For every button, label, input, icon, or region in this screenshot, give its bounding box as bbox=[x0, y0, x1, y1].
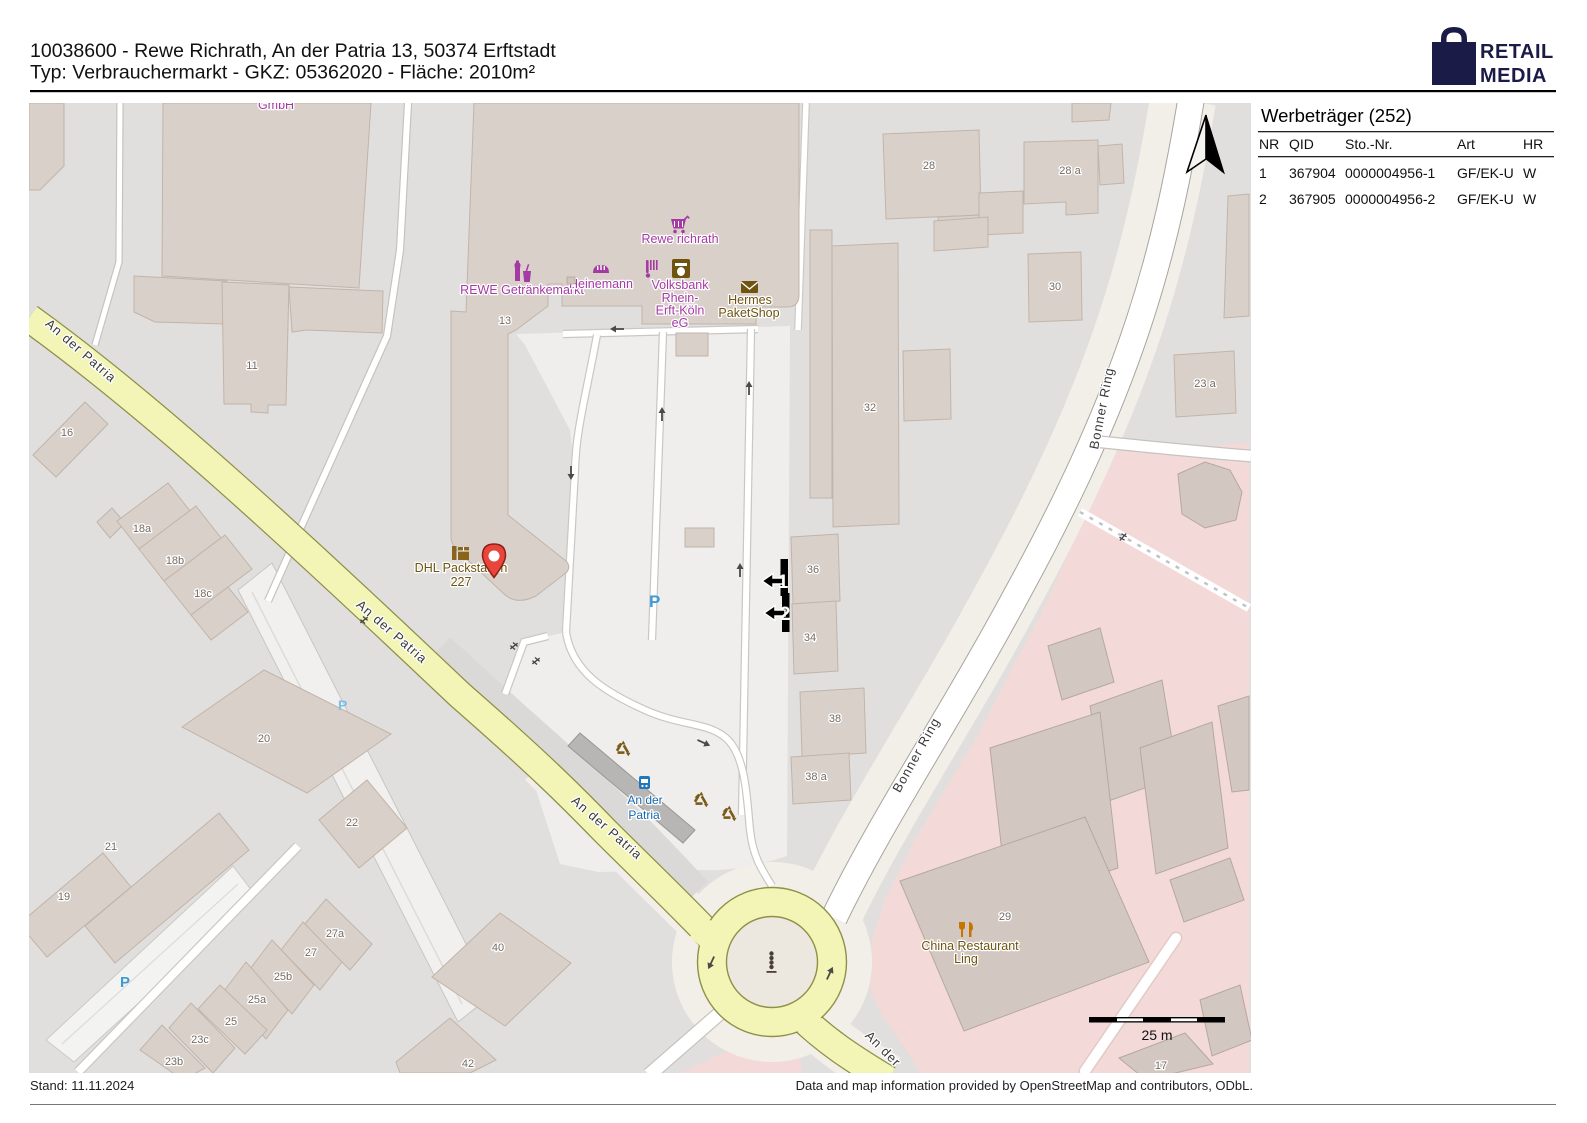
svg-text:Volksbank: Volksbank bbox=[652, 278, 710, 292]
svg-text:HR: HR bbox=[1523, 136, 1543, 152]
svg-text:18c: 18c bbox=[194, 588, 212, 600]
svg-text:27a: 27a bbox=[326, 928, 345, 940]
svg-text:367904: 367904 bbox=[1289, 165, 1336, 181]
svg-text:367905: 367905 bbox=[1289, 191, 1336, 207]
svg-text:19: 19 bbox=[58, 891, 70, 903]
svg-text:13: 13 bbox=[499, 315, 511, 327]
svg-text:29: 29 bbox=[999, 911, 1011, 923]
svg-text:Ling: Ling bbox=[954, 952, 978, 966]
svg-text:REWE Getränkemarkt: REWE Getränkemarkt bbox=[460, 283, 584, 297]
svg-text:16: 16 bbox=[61, 427, 73, 439]
svg-text:Data and map information provi: Data and map information provided by Ope… bbox=[796, 1078, 1253, 1093]
svg-text:QID: QID bbox=[1289, 136, 1314, 152]
svg-text:Heinemann: Heinemann bbox=[569, 277, 633, 291]
svg-text:38: 38 bbox=[829, 713, 841, 725]
svg-text:227: 227 bbox=[451, 575, 472, 589]
svg-text:36: 36 bbox=[807, 564, 819, 576]
svg-text:18a: 18a bbox=[133, 523, 152, 535]
svg-text:0000004956-1: 0000004956-1 bbox=[1345, 165, 1436, 181]
svg-text:10038600 - Rewe Richrath, An d: 10038600 - Rewe Richrath, An der Patria … bbox=[30, 40, 556, 62]
svg-text:Stand: 11.11.2024: Stand: 11.11.2024 bbox=[30, 1078, 134, 1093]
svg-text:38 a: 38 a bbox=[805, 771, 827, 783]
svg-text:PaketShop: PaketShop bbox=[718, 306, 779, 320]
svg-text:25: 25 bbox=[225, 1016, 237, 1028]
svg-text:GmbH: GmbH bbox=[258, 98, 294, 112]
svg-text:GF/EK-U: GF/EK-U bbox=[1457, 191, 1514, 207]
svg-text:Rewe richrath: Rewe richrath bbox=[641, 232, 718, 246]
svg-text:Patria: Patria bbox=[628, 808, 660, 822]
svg-text:Typ: Verbrauchermarkt - GKZ: 0: Typ: Verbrauchermarkt - GKZ: 05362020 - … bbox=[30, 62, 536, 84]
svg-text:China Restaurant: China Restaurant bbox=[921, 939, 1019, 953]
svg-text:2: 2 bbox=[780, 604, 791, 625]
svg-text:25b: 25b bbox=[274, 971, 292, 983]
svg-text:Sto.-Nr.: Sto.-Nr. bbox=[1345, 136, 1392, 152]
svg-text:P: P bbox=[649, 592, 660, 611]
svg-text:30: 30 bbox=[1049, 281, 1061, 293]
svg-text:1: 1 bbox=[778, 572, 789, 593]
svg-text:21: 21 bbox=[105, 841, 117, 853]
svg-text:0000004956-2: 0000004956-2 bbox=[1345, 191, 1436, 207]
svg-text:23c: 23c bbox=[191, 1034, 209, 1046]
svg-text:An der: An der bbox=[627, 793, 662, 807]
svg-text:Art: Art bbox=[1457, 136, 1475, 152]
svg-text:GF/EK-U: GF/EK-U bbox=[1457, 165, 1514, 181]
svg-text:NR: NR bbox=[1259, 136, 1279, 152]
svg-text:23 a: 23 a bbox=[1194, 378, 1216, 390]
svg-text:25a: 25a bbox=[248, 994, 267, 1006]
svg-text:P: P bbox=[338, 697, 347, 713]
svg-text:11: 11 bbox=[246, 360, 257, 372]
svg-text:20: 20 bbox=[258, 733, 270, 745]
svg-text:eG: eG bbox=[672, 316, 689, 330]
svg-text:W: W bbox=[1523, 165, 1537, 181]
svg-text:1: 1 bbox=[1259, 165, 1267, 181]
svg-text:Hermes: Hermes bbox=[728, 293, 772, 307]
svg-text:42: 42 bbox=[462, 1058, 474, 1070]
svg-text:34: 34 bbox=[804, 632, 816, 644]
svg-text:22: 22 bbox=[346, 817, 358, 829]
svg-text:17: 17 bbox=[1155, 1060, 1167, 1072]
svg-text:25 m: 25 m bbox=[1141, 1027, 1172, 1043]
svg-text:RETAIL: RETAIL bbox=[1480, 41, 1554, 63]
svg-text:P: P bbox=[120, 974, 130, 991]
svg-text:28: 28 bbox=[923, 160, 935, 172]
svg-text:28 a: 28 a bbox=[1059, 165, 1081, 177]
svg-text:W: W bbox=[1523, 191, 1537, 207]
svg-text:27: 27 bbox=[305, 947, 317, 959]
svg-text:40: 40 bbox=[492, 942, 504, 954]
svg-text:23b: 23b bbox=[165, 1056, 183, 1068]
svg-text:32: 32 bbox=[864, 402, 876, 414]
svg-text:Werbeträger (252): Werbeträger (252) bbox=[1261, 105, 1412, 126]
svg-text:18b: 18b bbox=[166, 555, 184, 567]
svg-text:2: 2 bbox=[1259, 191, 1267, 207]
svg-text:MEDIA: MEDIA bbox=[1480, 65, 1547, 87]
